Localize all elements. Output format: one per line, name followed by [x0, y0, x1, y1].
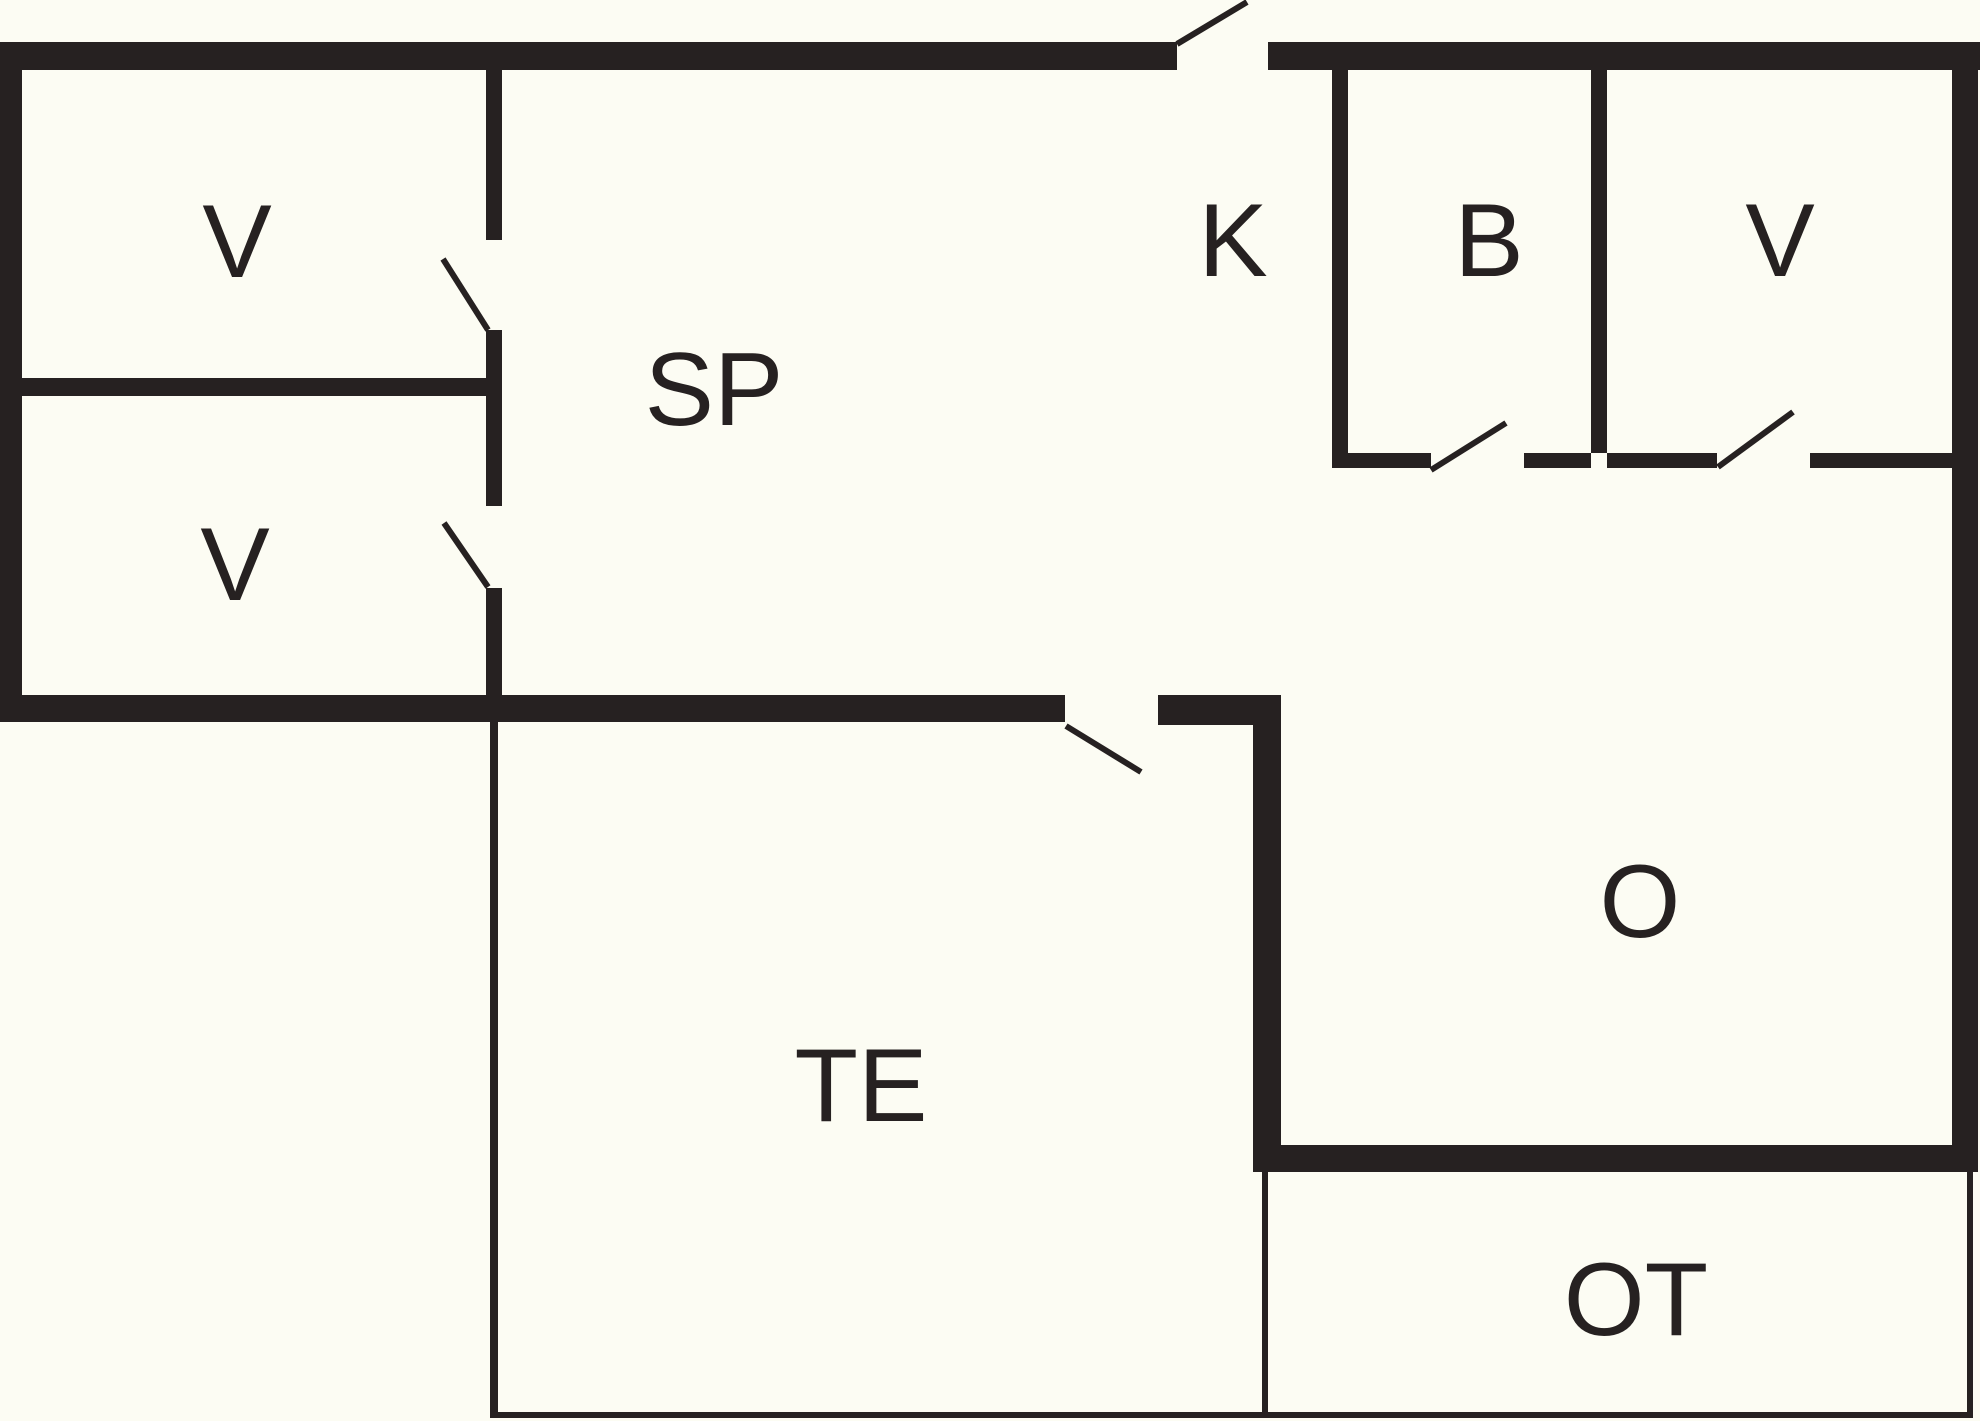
room-label-sp: SP: [645, 332, 784, 448]
exterior-top-wall-left-of-entrance: [0, 42, 1177, 70]
bottom-boundary-line: [490, 1412, 1973, 1418]
b-v-wall: [1591, 70, 1607, 453]
v-v-divider-wall: [22, 378, 502, 396]
kbv-bottom-wall-segment-4: [1810, 453, 1952, 468]
k-b-wall: [1332, 70, 1348, 468]
room-label-ot: OT: [1564, 1242, 1708, 1358]
room-label-o: O: [1600, 844, 1681, 960]
ot-right-boundary-line: [1967, 1172, 1973, 1418]
exterior-left-wall: [0, 42, 22, 722]
kbv-bottom-wall-segment-3: [1607, 453, 1717, 468]
room-label-k: K: [1198, 183, 1267, 299]
room-label-v-top-right: V: [1745, 183, 1814, 299]
ot-left-boundary-line: [1262, 1172, 1268, 1418]
room-label-v-top-left: V: [202, 184, 271, 300]
v-sp-wall-middle-segment: [486, 330, 502, 506]
kbv-bottom-wall-segment-2: [1524, 453, 1591, 468]
left-wing-bottom-wall: [0, 695, 1065, 722]
v-sp-wall-upper-segment: [486, 70, 502, 240]
room-label-te: TE: [795, 1028, 928, 1144]
te-o-wall: [1253, 695, 1281, 1172]
v-sp-wall-lower-segment: [486, 588, 502, 695]
room-label-v-lower-left: V: [200, 507, 269, 623]
kbv-bottom-wall-segment-1: [1332, 453, 1431, 468]
floorplan-svg: VVSPKBVOTEOT: [0, 0, 1980, 1421]
exterior-right-wall: [1952, 42, 1978, 1172]
te-left-boundary-line: [490, 722, 498, 1418]
exterior-top-wall-right-of-entrance: [1268, 42, 1980, 70]
o-bottom-wall: [1253, 1145, 1978, 1172]
room-label-b: B: [1454, 183, 1523, 299]
